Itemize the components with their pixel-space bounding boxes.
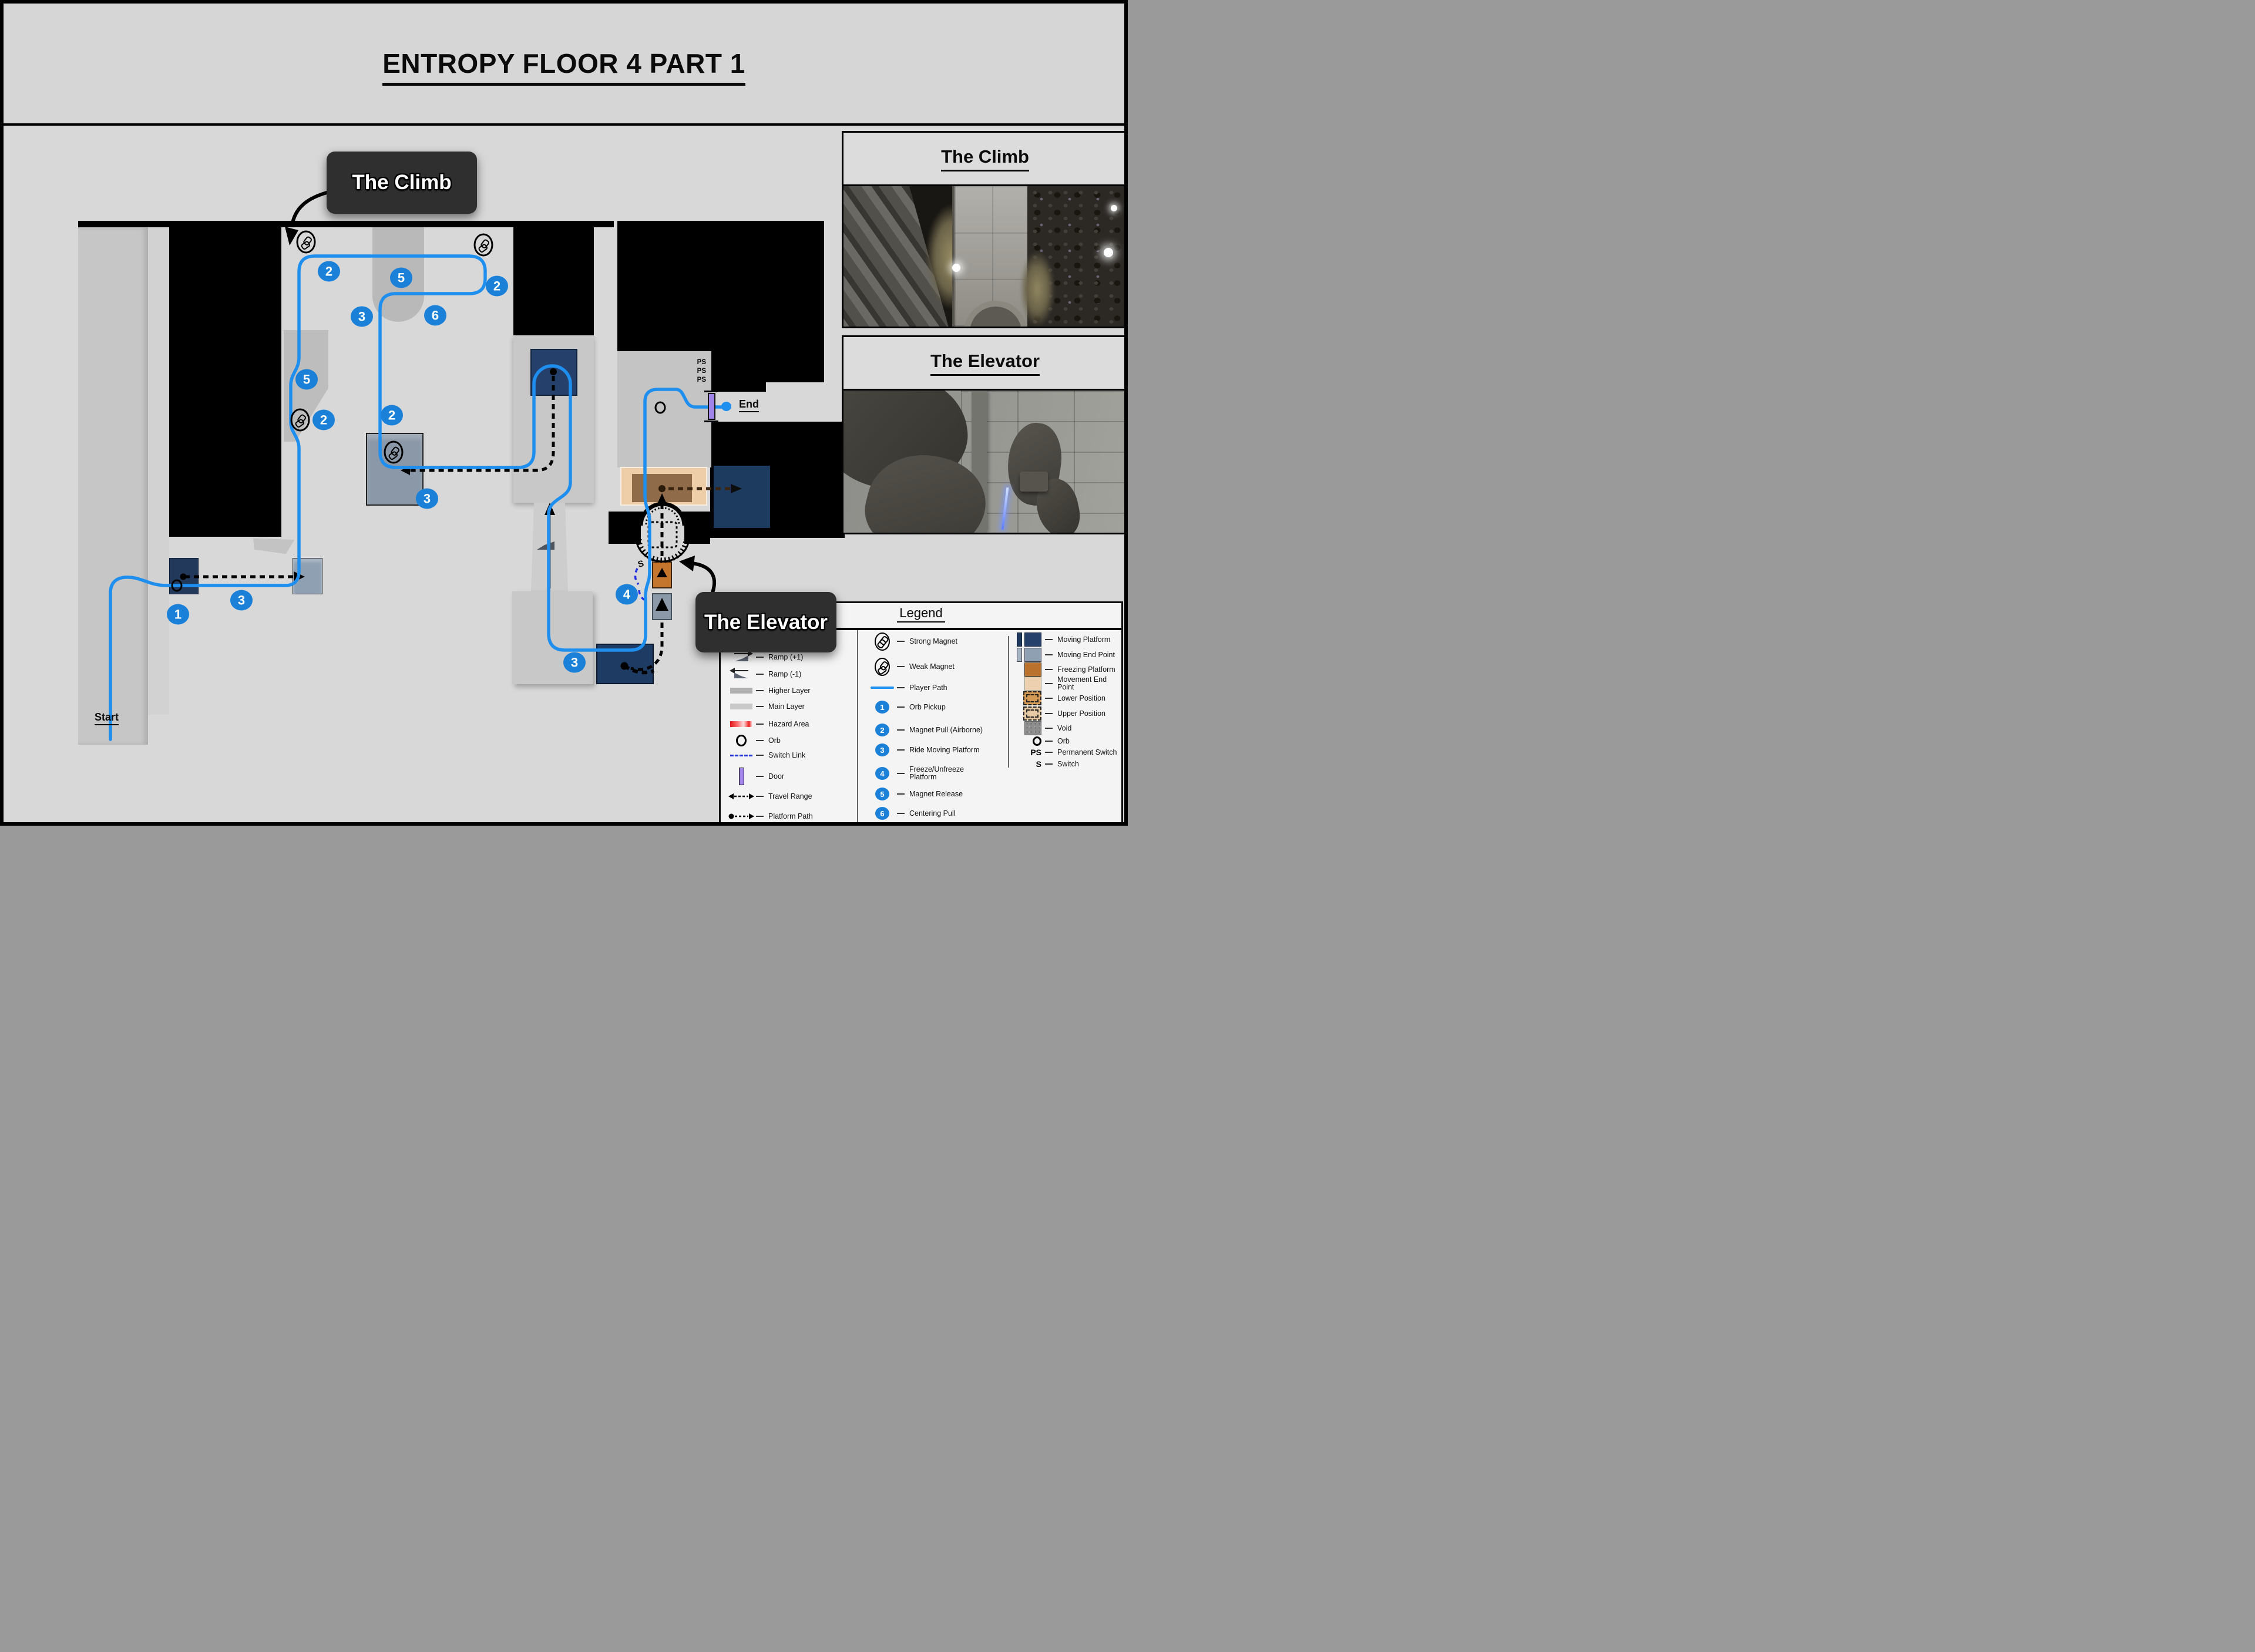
step-badge-2: 2	[312, 410, 335, 430]
legend-divider	[857, 630, 858, 824]
permanent-switch-labels: PSPSPS	[684, 358, 706, 385]
step-badge-6: 6	[424, 305, 446, 326]
orb	[172, 580, 183, 592]
orb	[655, 402, 666, 414]
moving-platform-bottom	[596, 644, 654, 684]
moving-end-point-1	[293, 558, 322, 594]
wall-top	[78, 221, 614, 227]
legend-divider	[1008, 636, 1009, 768]
chain-glyph	[293, 413, 307, 427]
moss-patch	[1020, 251, 1055, 327]
orb-light	[1111, 205, 1117, 211]
ramp-corridor	[531, 503, 568, 592]
step-badge-3: 3	[416, 489, 438, 509]
legend-item-ramp-down: Ramp (-1)	[728, 667, 801, 682]
step-badge-4: 4	[616, 584, 638, 605]
weak-magnet-icon	[474, 234, 493, 257]
end-label: End	[739, 398, 759, 411]
legend-item-switch: SSwitch	[1014, 756, 1079, 772]
chain-glyph	[387, 445, 401, 459]
elevator-end-point	[652, 593, 672, 620]
end-dot	[721, 402, 731, 411]
wall-middle-column	[513, 227, 594, 335]
inset-the-elevator: The Elevator	[842, 335, 1128, 534]
step-badge-3: 3	[351, 307, 373, 327]
legend-item-moving-end-point: Moving End Point	[1014, 647, 1115, 662]
freezing-platform-large	[632, 474, 692, 502]
elevator-dome-cutout	[641, 506, 684, 549]
moving-platform-2	[530, 349, 577, 396]
callout-the-climb: The Climb	[327, 152, 477, 214]
legend-item-moving-platform: Moving Platform	[1014, 632, 1110, 647]
chain-glyph	[299, 235, 313, 249]
wall-left-column	[169, 227, 281, 537]
step-badge-3: 3	[563, 652, 586, 673]
legend-item-magnet-pull: 2Magnet Pull (Airborne)	[869, 722, 983, 738]
legend-item-travel-range: Travel Range	[728, 789, 812, 804]
ramp-wedge	[252, 534, 295, 554]
legend-item-orb-pickup: 1Orb Pickup	[869, 699, 946, 715]
start-strip	[78, 227, 148, 745]
legend-item-lower-position: Lower Position	[1014, 691, 1105, 706]
inset-the-climb: The Climb	[842, 131, 1128, 328]
switch-label: S	[637, 558, 645, 570]
step-badge-2: 2	[381, 405, 403, 426]
step-badge-3: 3	[230, 590, 253, 611]
step-badge-1: 1	[167, 604, 189, 625]
hanging-platform	[1020, 472, 1048, 492]
orb-light	[952, 264, 960, 272]
page-title: ENTROPY FLOOR 4 PART 1	[382, 48, 745, 79]
legend-item-ride-moving-platform: 3Ride Moving Platform	[869, 742, 980, 758]
weak-magnet-icon	[291, 409, 310, 432]
weak-magnet-icon	[384, 441, 404, 464]
step-badge-5: 5	[390, 268, 412, 288]
weak-magnet-icon	[297, 231, 316, 254]
inset-elevator-header: The Elevator	[843, 337, 1127, 391]
legend-item-weak-magnet: Weak Magnet	[869, 659, 955, 674]
moving-platform-right	[713, 465, 771, 529]
legend-item-higher-layer: Higher Layer	[728, 683, 811, 698]
wall-right-upper	[766, 221, 824, 382]
wall-topright-step	[711, 221, 766, 392]
legend-item-strong-magnet: Strong Magnet	[869, 634, 957, 649]
legend-item-freeze-unfreeze: 4Freeze/Unfreeze Platform	[869, 766, 986, 781]
legend-item-movement-end-point: Movement End Point	[1014, 676, 1121, 691]
start-label: Start	[95, 711, 119, 724]
door	[708, 393, 715, 420]
start-strip-edge	[148, 227, 169, 715]
legend-item-hazard-area: Hazard Area	[728, 716, 809, 732]
legend-item-platform-path: Platform Path	[728, 809, 813, 824]
climb-screenshot	[843, 186, 1127, 327]
orb-light	[1104, 248, 1113, 257]
inset-climb-header: The Climb	[843, 133, 1127, 186]
legend-item-door: Door	[728, 769, 784, 784]
legend-item-upper-position: Upper Position	[1014, 706, 1105, 721]
freezing-platform-elevator	[652, 561, 672, 588]
title-bar: ENTROPY FLOOR 4 PART 1	[4, 4, 1124, 126]
step-badge-2: 2	[318, 261, 340, 282]
chain-glyph	[476, 238, 490, 252]
step-badge-5: 5	[295, 369, 318, 390]
callout-the-elevator: The Elevator	[695, 592, 836, 652]
level-map-page: ENTROPY FLOOR 4 PART 1	[0, 0, 1128, 826]
legend-item-player-path: Player Path	[869, 680, 947, 695]
legend-item-main-layer: Main Layer	[728, 699, 805, 714]
step-badge-2: 2	[486, 276, 508, 297]
elevator-screenshot	[843, 391, 1127, 533]
legend-item-centering-pull: 6Centering Pull	[869, 806, 956, 821]
legend-item-magnet-release: 5Magnet Release	[869, 786, 963, 802]
legend-item-switch-link: Switch Link	[728, 748, 805, 763]
legend-item-orb: Orb	[728, 733, 781, 748]
